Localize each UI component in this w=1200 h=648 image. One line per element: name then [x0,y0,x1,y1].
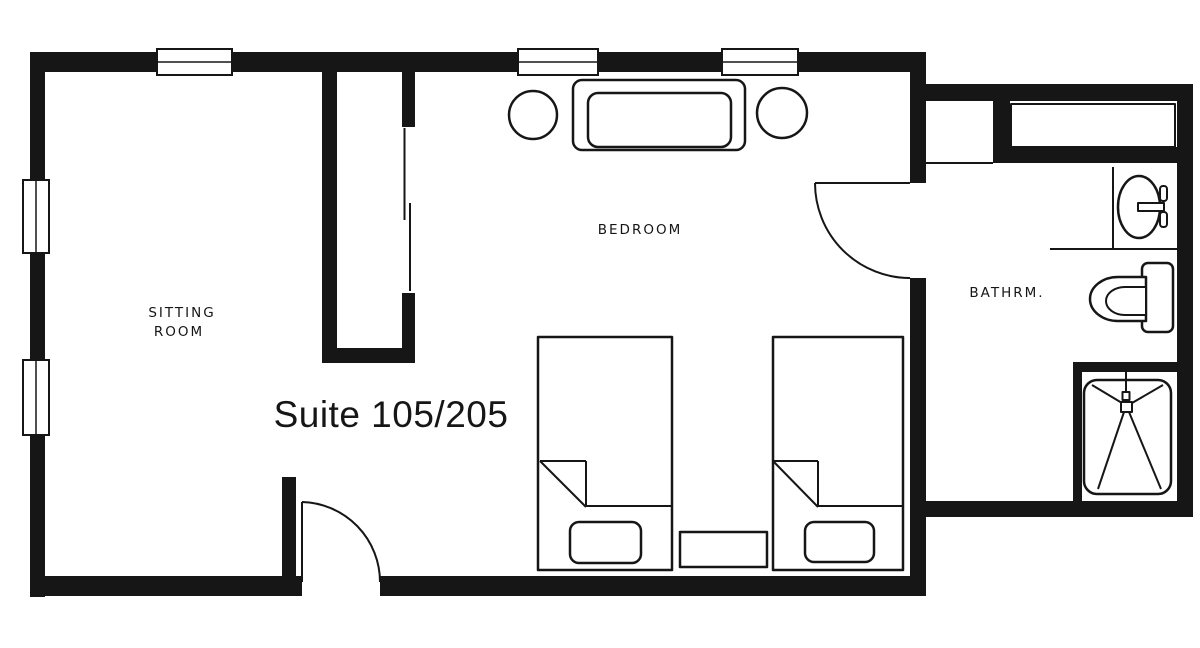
window-symbol-left-1 [23,180,49,253]
door-arc [815,183,910,278]
door-arc [302,502,380,582]
wall-top-2 [232,52,518,72]
wall-bath-divider-upper [910,52,926,183]
window-symbol-top-bedroom-1 [518,49,598,75]
wall-top-3 [598,52,722,72]
shower-head [1123,392,1130,400]
bed-bench-icon [805,522,874,562]
wall-closet-left [322,72,337,363]
round-side-table-icon-left [509,91,557,139]
sofa-icon [573,80,745,150]
toilet-icon [1090,263,1173,332]
window-symbol-top-sitting [157,49,232,75]
wall-closet-bottom [322,348,415,363]
wall-bath-bottom [910,501,1193,517]
wall-bath-divider-lower [910,278,926,596]
wall-closet-right-lower [402,293,415,363]
wall-left-1 [30,52,45,180]
twin-bed-icon-1 [538,337,672,570]
bed-bench-icon [570,522,641,563]
shower-drain [1121,402,1132,412]
toilet-bowl-inner [1106,287,1146,315]
window-symbol-top-bedroom-2 [722,49,798,75]
door-swing-symbol-bathroom [815,183,910,278]
round-side-table-icon-right [757,88,807,138]
wall-left-3 [30,435,45,597]
wall-shower-top [1073,362,1180,372]
bedroom-label: BEDROOM [598,222,682,238]
wall-bath-right [1177,84,1193,517]
sitting-room-label-line2: ROOM [154,324,204,340]
wall-top-1 [30,52,157,72]
wall-left-2 [30,253,45,360]
wall-entry-stub [282,477,296,596]
sink-handle-top [1160,186,1167,201]
wall-bottom-1 [30,576,302,596]
window-symbol-left-2 [23,360,49,435]
bathroom-label: BATHRM. [969,285,1044,301]
wall-bath-top [910,84,1193,101]
sliding-door-symbol-closet [405,128,411,291]
sink-vanity-icon [1050,167,1177,249]
sitting-room-label-line1: SITTING [148,305,215,321]
wall-bottom-2 [380,576,926,596]
furniture [509,80,903,570]
twin-bed-icon-2 [773,337,903,570]
sink-faucet [1138,203,1164,211]
floor-plan-page: SITTING ROOM BEDROOM BATHRM. Suite 105/2… [0,0,1200,648]
sink-handle-bottom [1160,212,1167,227]
wall-shower-left [1073,362,1082,503]
wall-closet-right-upper [402,72,415,127]
closet-shelf-icon [1011,104,1175,147]
suite-title: Suite 105/205 [274,394,509,435]
door-swing-symbol-entry [302,502,380,582]
wall-linen-bottom [993,147,1177,163]
shower-icon [1084,372,1171,494]
floor-plan: SITTING ROOM BEDROOM BATHRM. Suite 105/2… [0,0,1200,648]
wall-top-4 [798,52,926,72]
sofa-seat [588,93,731,147]
nightstand-icon [680,532,767,567]
